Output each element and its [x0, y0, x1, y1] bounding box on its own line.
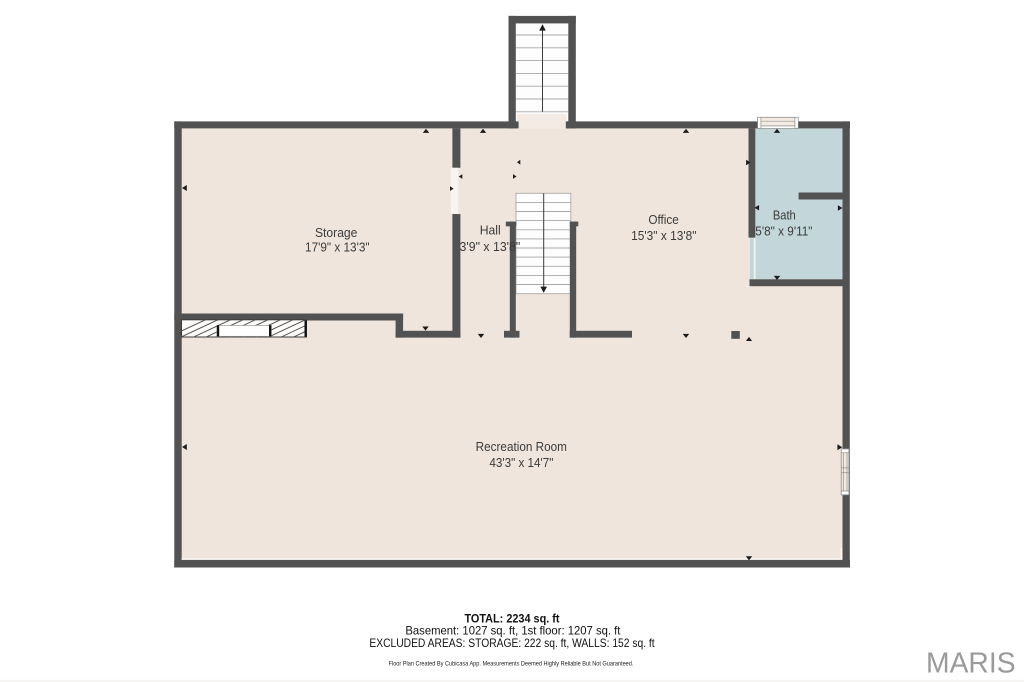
- svg-text:Floor Plan Created By Cubicasa: Floor Plan Created By Cubicasa App. Meas…: [389, 661, 634, 667]
- svg-text:Recreation Room: Recreation Room: [476, 439, 567, 454]
- svg-text:Basement: 1027 sq. ft, 1st flo: Basement: 1027 sq. ft, 1st floor: 1207 s…: [405, 624, 621, 637]
- svg-text:3'9" x 13'8": 3'9" x 13'8": [460, 239, 521, 254]
- svg-text:Office: Office: [648, 212, 679, 227]
- svg-text:Hall: Hall: [480, 223, 501, 238]
- svg-text:Bath: Bath: [773, 208, 796, 223]
- svg-text:5'8" x 9'11": 5'8" x 9'11": [755, 224, 812, 239]
- svg-text:EXCLUDED AREAS: STORAGE: 222 s: EXCLUDED AREAS: STORAGE: 222 sq. ft, WAL…: [369, 637, 655, 650]
- svg-text:Storage: Storage: [315, 225, 358, 240]
- svg-text:17'9" x 13'3": 17'9" x 13'3": [305, 240, 370, 255]
- svg-text:15'3" x 13'8": 15'3" x 13'8": [631, 228, 696, 243]
- svg-text:MARIS: MARIS: [926, 646, 1016, 678]
- svg-text:43'3" x 14'7": 43'3" x 14'7": [489, 455, 553, 470]
